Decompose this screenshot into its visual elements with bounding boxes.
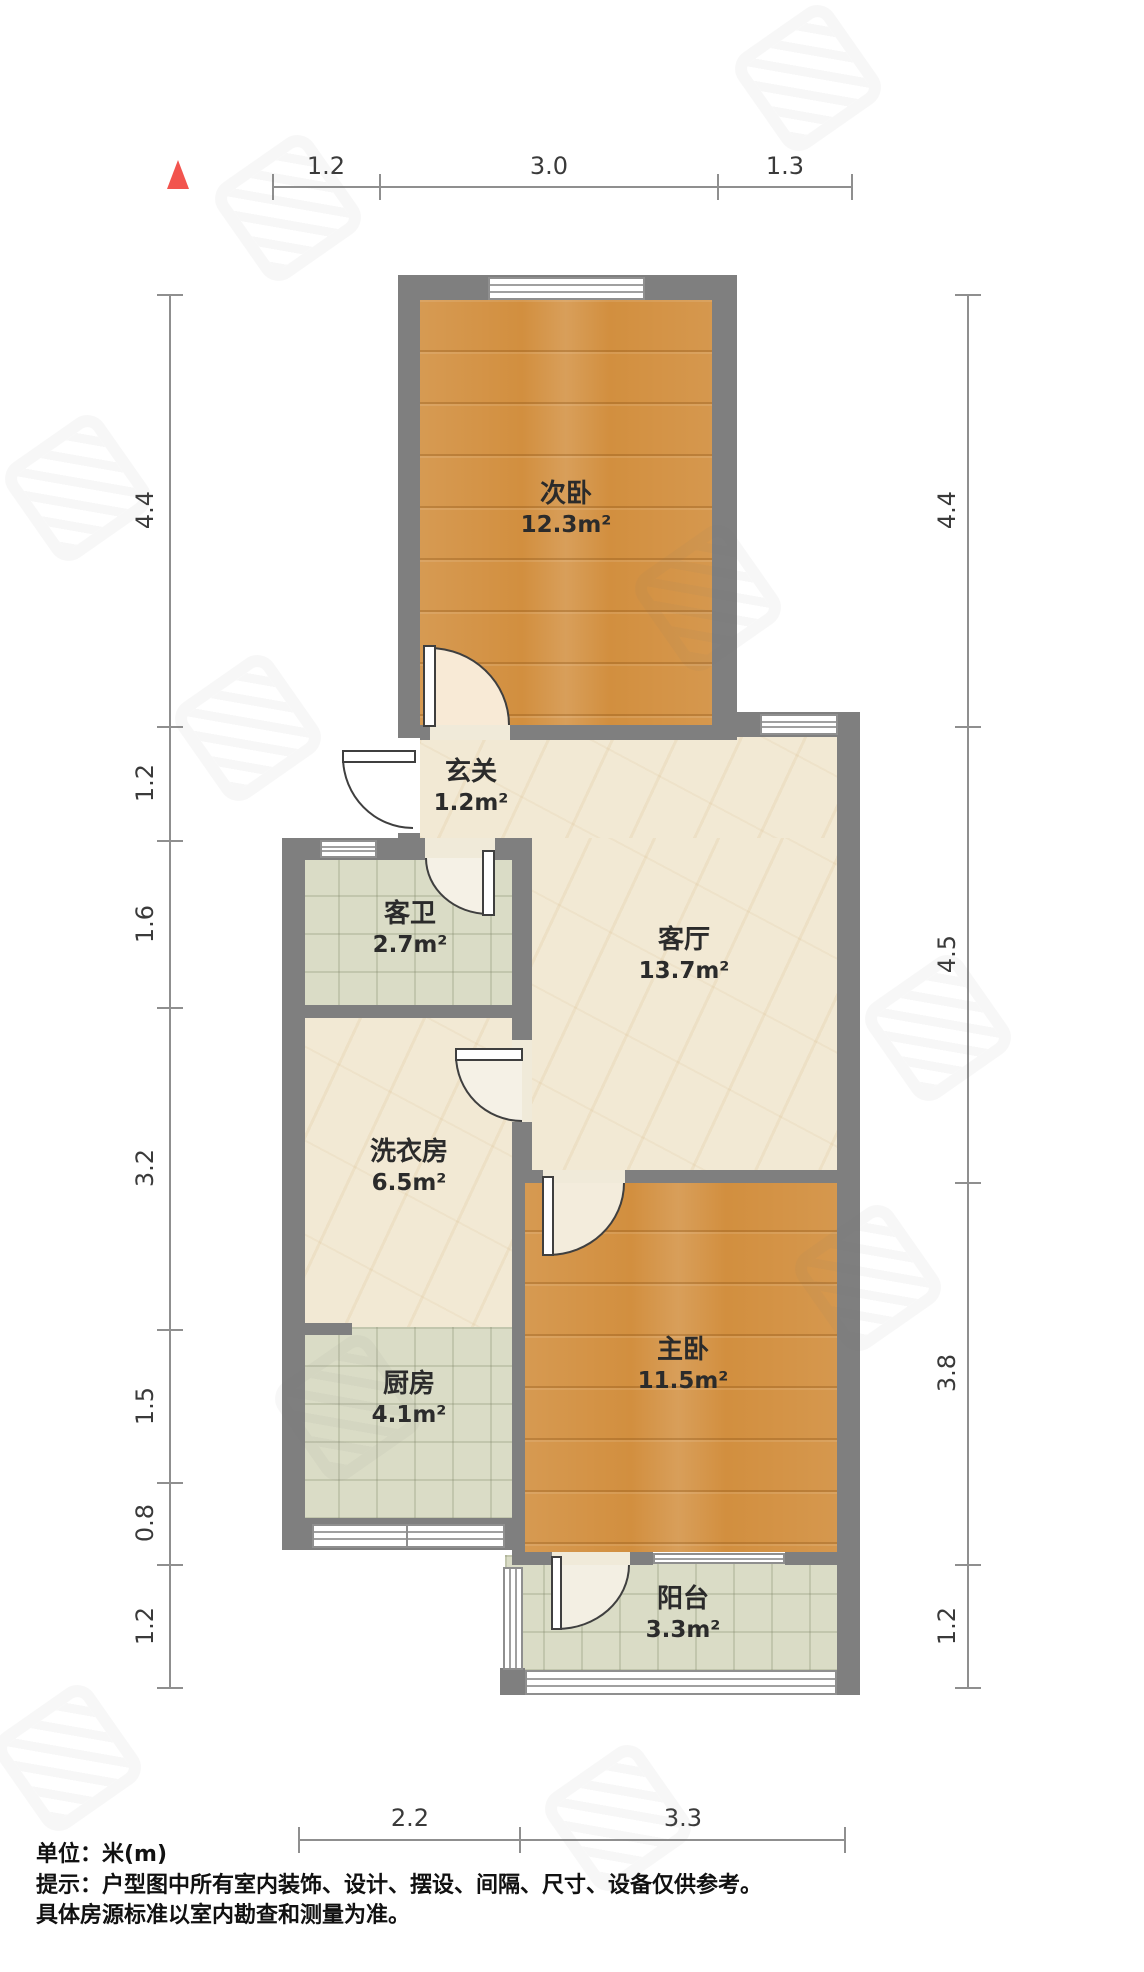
room-area: 6.5m² bbox=[324, 1168, 494, 1198]
laundry-room-door bbox=[455, 1048, 523, 1061]
wall bbox=[512, 1552, 552, 1565]
dim-tick bbox=[955, 294, 981, 296]
dim-label: 1.2 bbox=[131, 748, 159, 818]
wall bbox=[398, 275, 420, 738]
dim-label: 1.2 bbox=[131, 1591, 159, 1661]
dim-label: 4.4 bbox=[933, 475, 961, 545]
dim-tick bbox=[955, 1182, 981, 1184]
room-area: 1.2m² bbox=[386, 788, 556, 818]
wall bbox=[512, 838, 532, 1040]
wall bbox=[785, 1552, 860, 1565]
footer-unit-note: 单位：米(m) bbox=[36, 1836, 167, 1868]
room-label-laundry-room: 洗衣房 6.5m² bbox=[324, 1136, 494, 1198]
dim-label: 3.0 bbox=[514, 152, 584, 180]
door-opening bbox=[543, 1170, 625, 1183]
dim-tick bbox=[157, 840, 183, 842]
balcony-door bbox=[551, 1556, 562, 1630]
dim-label: 1.3 bbox=[750, 152, 820, 180]
wall bbox=[510, 725, 712, 740]
wall bbox=[512, 1170, 543, 1183]
dim-line-top bbox=[273, 186, 852, 188]
room-name: 玄关 bbox=[386, 756, 556, 788]
wall bbox=[625, 1170, 837, 1183]
floor-living-room bbox=[525, 838, 837, 1170]
wall bbox=[512, 1122, 532, 1170]
dim-label: 1.6 bbox=[131, 889, 159, 959]
room-label-second-bedroom: 次卧 12.3m² bbox=[481, 478, 651, 540]
window-balcony-front bbox=[525, 1670, 837, 1695]
watermark bbox=[857, 947, 1019, 1109]
room-name: 客厅 bbox=[599, 924, 769, 956]
room-name: 次卧 bbox=[481, 478, 651, 510]
dim-tick bbox=[844, 1827, 846, 1853]
dim-tick bbox=[157, 1687, 183, 1689]
watermark bbox=[167, 647, 329, 809]
dim-label: 2.2 bbox=[375, 1804, 445, 1832]
dim-label: 0.8 bbox=[131, 1488, 159, 1558]
window-second-bedroom bbox=[488, 277, 645, 300]
wall bbox=[500, 1668, 525, 1695]
dim-label: 1.5 bbox=[131, 1371, 159, 1441]
window-balcony-side bbox=[503, 1567, 523, 1670]
wall bbox=[420, 725, 430, 740]
watermark bbox=[0, 1677, 149, 1839]
master-bedroom-door bbox=[542, 1176, 554, 1256]
window-guest-bathroom bbox=[320, 840, 377, 858]
room-label-entry-hall: 玄关 1.2m² bbox=[386, 756, 556, 818]
dim-tick bbox=[851, 174, 853, 200]
window-divider bbox=[406, 1526, 408, 1546]
footer-tip-note-1: 提示：户型图中所有室内装饰、设计、摆设、间隔、尺寸、设备仅供参考。 bbox=[36, 1867, 762, 1899]
dim-tick bbox=[157, 1007, 183, 1009]
room-label-guest-bathroom: 客卫 2.7m² bbox=[325, 898, 495, 960]
door-opening bbox=[552, 1552, 630, 1565]
second-bedroom-door bbox=[423, 645, 436, 727]
window-living-room bbox=[760, 714, 838, 735]
dim-tick bbox=[157, 1482, 183, 1484]
wall bbox=[837, 712, 860, 1695]
dim-label: 3.2 bbox=[131, 1133, 159, 1203]
room-name: 洗衣房 bbox=[324, 1136, 494, 1168]
dim-tick bbox=[157, 294, 183, 296]
room-label-master-bedroom: 主卧 11.5m² bbox=[598, 1334, 768, 1396]
room-area: 2.7m² bbox=[325, 930, 495, 960]
watermark bbox=[727, 0, 889, 159]
room-area: 11.5m² bbox=[598, 1366, 768, 1396]
dim-tick bbox=[717, 174, 719, 200]
wall bbox=[282, 1005, 532, 1018]
floor-plan: 次卧 12.3m² 玄关 1.2m² 客卫 2.7m² 客厅 13.7m² 洗衣… bbox=[0, 0, 1144, 1972]
room-label-living-room: 客厅 13.7m² bbox=[599, 924, 769, 986]
footer-tip-note-2: 具体房源标准以室内勘查和测量为准。 bbox=[36, 1897, 410, 1929]
room-name: 主卧 bbox=[598, 1334, 768, 1366]
door-opening bbox=[430, 725, 510, 740]
dim-line-left bbox=[169, 295, 171, 1688]
dim-tick bbox=[519, 1827, 521, 1853]
room-name: 客卫 bbox=[325, 898, 495, 930]
dim-label: 1.2 bbox=[933, 1591, 961, 1661]
window-master-bedroom bbox=[653, 1553, 785, 1564]
north-arrow-icon bbox=[167, 160, 189, 189]
room-label-balcony: 阳台 3.3m² bbox=[598, 1583, 768, 1645]
dim-tick bbox=[157, 1564, 183, 1566]
dim-tick bbox=[955, 1564, 981, 1566]
wall bbox=[282, 1323, 352, 1335]
room-area: 3.3m² bbox=[598, 1615, 768, 1645]
wall bbox=[630, 1552, 653, 1565]
wall bbox=[512, 1170, 525, 1565]
dim-label: 3.8 bbox=[933, 1338, 961, 1408]
dim-tick bbox=[955, 1687, 981, 1689]
dim-tick bbox=[157, 1329, 183, 1331]
dim-tick bbox=[298, 1827, 300, 1853]
room-area: 13.7m² bbox=[599, 956, 769, 986]
dim-tick bbox=[379, 174, 381, 200]
wall bbox=[712, 275, 737, 740]
room-area: 12.3m² bbox=[481, 510, 651, 540]
room-name: 阳台 bbox=[598, 1583, 768, 1615]
dim-tick bbox=[955, 726, 981, 728]
window-kitchen bbox=[312, 1524, 505, 1548]
